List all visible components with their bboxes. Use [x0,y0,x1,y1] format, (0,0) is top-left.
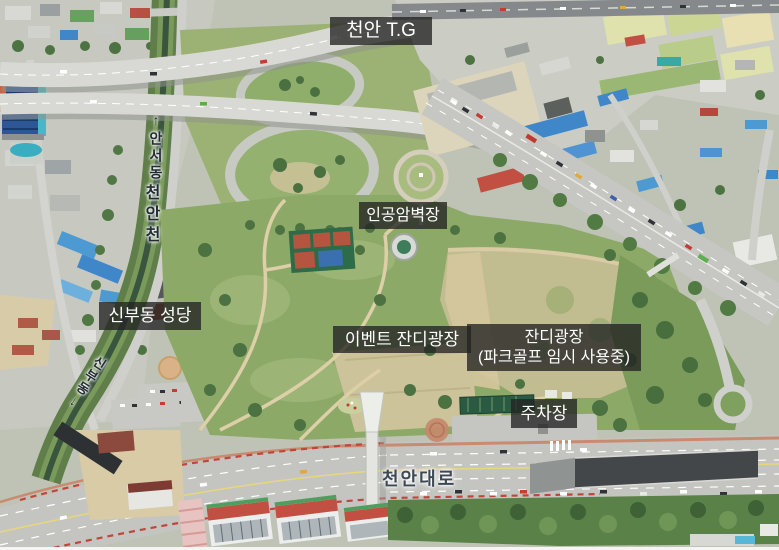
apartment-block [274,495,341,544]
tree-band-south [388,494,779,546]
label-lawn-plaza-line1: 잔디광장 [525,328,584,348]
label-cheonan-tollgate: 천안 T.G [330,17,432,45]
label-parking-lot: 주차장 [511,399,577,428]
label-climbing-wall: 인공암벽장 [359,202,447,229]
label-lawn-plaza: 잔디광장 (파크골프 임시 사용중) [467,324,641,371]
expressway-top [392,4,779,13]
label-event-lawn-plaza: 이벤트 잔디광장 [333,326,471,353]
apartment-block [206,497,273,546]
label-cheonan-daero: 천안대로 [382,465,456,491]
label-lawn-plaza-line2: (파크골프 임시 사용중) [478,348,630,368]
label-sinbudong-church: 신부동 성당 [99,302,201,330]
tennis-courts [289,227,356,273]
climbing-wall [391,234,417,260]
label-cheonancheon-stream: 천안천 [138,184,162,247]
apartment-block [344,502,394,541]
aerial-photo: 천안 T.G 인공암벽장 신부동 성당 이벤트 잔디광장 잔디광장 (파크골프 … [0,0,779,550]
label-direction-anseodong: ↑안서동 [146,112,166,182]
